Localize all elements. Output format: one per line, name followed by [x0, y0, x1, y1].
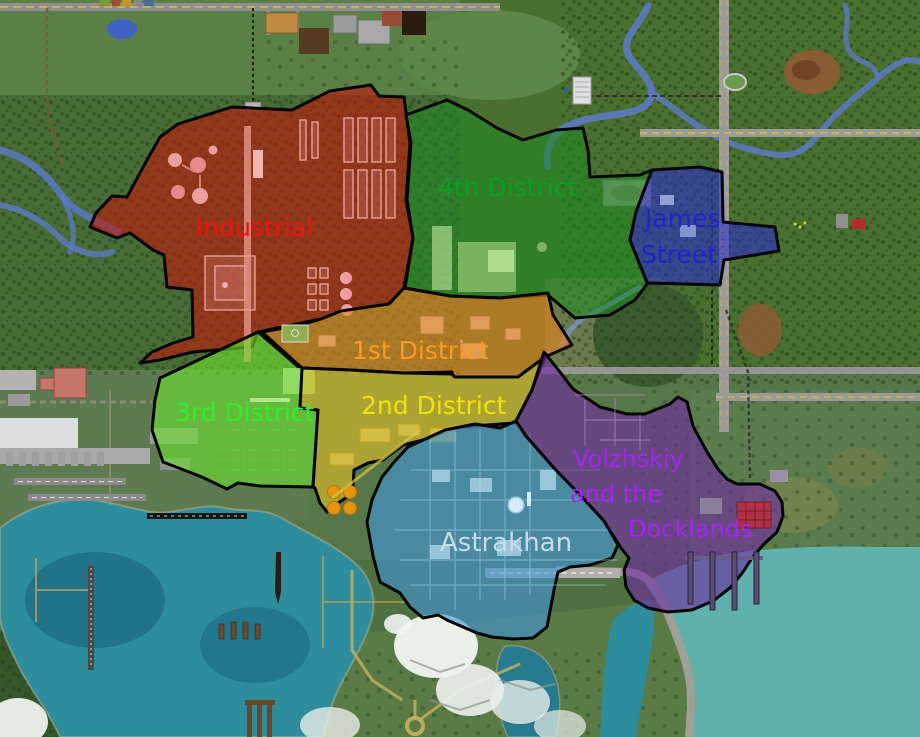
district-label-industrial: Industrial	[196, 213, 313, 242]
world-map: Industrial 4th District James Street 1st…	[0, 0, 920, 737]
district-label-astrakhan: Astrakhan	[440, 528, 572, 558]
white-tower	[573, 77, 591, 104]
district-label-fourth: 4th District	[438, 173, 577, 202]
district-label-volzhskiy-line1: Volzhskiy	[573, 445, 684, 473]
stadium	[724, 74, 746, 90]
hospital-building	[54, 368, 86, 398]
district-label-volzhskiy-line2: and the	[570, 480, 662, 508]
map-canvas: Industrial 4th District James Street 1st…	[0, 0, 920, 737]
pond	[107, 19, 137, 39]
district-label-james-line1: James	[643, 204, 720, 233]
east-west-road-mid	[540, 367, 920, 374]
district-label-third: 3rd District	[175, 398, 315, 427]
district-label-second: 2nd District	[361, 391, 507, 420]
red-roof-building	[852, 219, 866, 229]
farm-building	[266, 13, 298, 33]
district-label-james-line2: Street	[641, 240, 717, 269]
railway-platform-bar	[147, 513, 247, 519]
district-label-first: 1st District	[352, 336, 489, 365]
domed-building	[508, 497, 524, 513]
district-label-volzhskiy-line3: Docklands	[628, 515, 753, 543]
wooden-dock	[245, 700, 275, 737]
